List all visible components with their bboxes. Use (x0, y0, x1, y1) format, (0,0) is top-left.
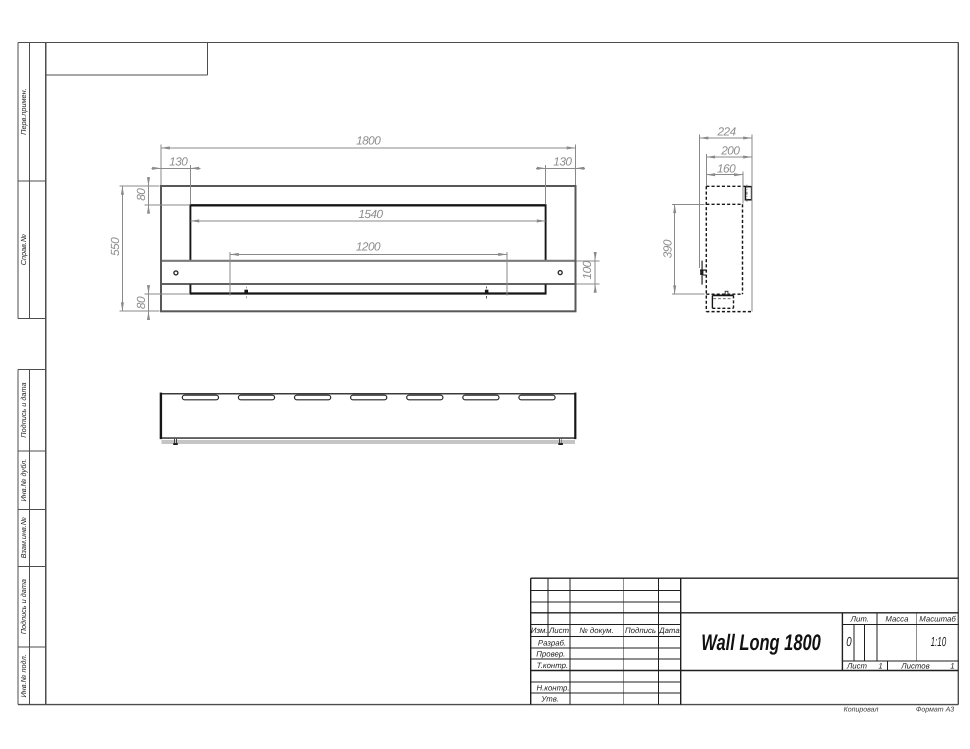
svg-text:1:10: 1:10 (931, 634, 947, 649)
svg-text:1: 1 (878, 661, 882, 670)
svg-text:1540: 1540 (358, 207, 383, 221)
svg-text:Формат А3: Формат А3 (916, 707, 954, 714)
svg-text:Масса: Масса (885, 615, 909, 624)
svg-text:0: 0 (846, 634, 852, 649)
svg-text:1200: 1200 (356, 239, 381, 253)
svg-text:Провер.: Провер. (536, 650, 565, 659)
svg-text:Н.контр.: Н.контр. (536, 683, 569, 692)
svg-text:Перв.примен.: Перв.примен. (19, 88, 28, 134)
svg-text:Wall Long 1800: Wall Long 1800 (701, 630, 821, 655)
svg-text:1800: 1800 (356, 133, 381, 147)
svg-text:224: 224 (717, 124, 737, 138)
svg-text:Листов: Листов (900, 661, 929, 670)
svg-text:Масштаб: Масштаб (919, 615, 956, 624)
svg-text:200: 200 (720, 143, 740, 157)
svg-text:80: 80 (134, 188, 148, 201)
svg-text:Подпись и дата: Подпись и дата (19, 579, 28, 634)
svg-text:550: 550 (108, 237, 122, 256)
svg-text:Инв.№ дубл.: Инв.№ дубл. (19, 459, 28, 502)
svg-text:Подпись и дата: Подпись и дата (19, 382, 28, 437)
svg-text:Подпись: Подпись (625, 626, 656, 635)
svg-text:Утв.: Утв. (540, 695, 559, 704)
svg-text:Лит.: Лит. (850, 615, 869, 624)
svg-text:Лист: Лист (846, 661, 868, 670)
svg-text:130: 130 (169, 154, 188, 168)
svg-text:1: 1 (950, 661, 954, 670)
svg-text:160: 160 (717, 161, 736, 175)
svg-text:100: 100 (580, 260, 594, 279)
svg-text:80: 80 (134, 296, 148, 309)
svg-text:Взам.инв.№: Взам.инв.№ (19, 517, 28, 558)
svg-text:Инв.№ подл.: Инв.№ подл. (19, 654, 28, 697)
svg-text:Разраб.: Разраб. (538, 638, 566, 647)
svg-text:Дата: Дата (658, 626, 680, 635)
svg-text:Лист: Лист (548, 626, 570, 635)
svg-text:Справ.№: Справ.№ (19, 234, 28, 265)
svg-text:390: 390 (660, 239, 674, 258)
svg-text:Изм.: Изм. (531, 626, 548, 635)
svg-text:Копировал: Копировал (844, 707, 879, 714)
svg-text:Т.контр.: Т.контр. (537, 661, 568, 670)
svg-text:№ докум.: № докум. (579, 626, 613, 635)
svg-text:130: 130 (553, 154, 572, 168)
